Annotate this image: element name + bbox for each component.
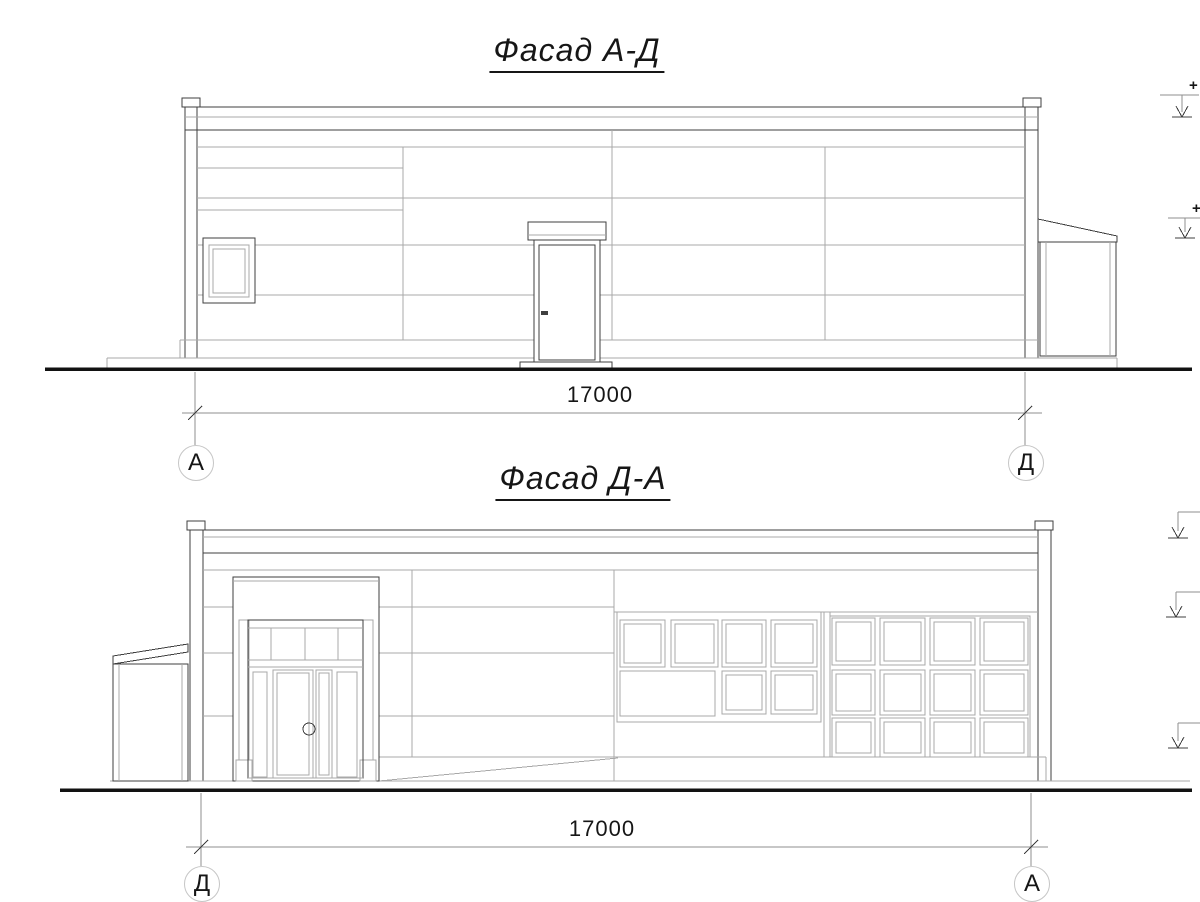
axis-marker-bottom-right: А [1014,866,1050,902]
wall-panel-joints [197,130,1025,340]
facade-da-title: Фасад Д-А [495,460,670,501]
facade-da-drawing [60,512,1200,866]
drawing-canvas: Фасад А-Д Фасад Д-А 17000 17000 А Д Д А … [0,0,1200,900]
axis-marker-bottom-left: Д [184,866,220,902]
elevation-mark-plus-1: + [1189,77,1198,94]
level-marks-bottom [1166,512,1200,748]
facade-ad-title: Фасад А-Д [489,32,664,73]
axis-marker-top-right: Д [1008,445,1044,481]
window-group-left [617,612,821,722]
entrance-door [520,222,612,368]
annex-left [113,644,188,781]
window [203,238,255,303]
entrance-portal [233,577,379,781]
ramp-line [379,758,618,781]
window-mullion [824,612,830,757]
dimension-label-top: 17000 [567,382,633,408]
dimension-label-bottom: 17000 [569,816,635,842]
window-group-right [830,616,1030,757]
door-handle [541,311,548,315]
elevation-mark-plus-2: + [1192,200,1200,217]
annex-right [1038,219,1117,356]
axis-marker-top-left: А [178,445,214,481]
